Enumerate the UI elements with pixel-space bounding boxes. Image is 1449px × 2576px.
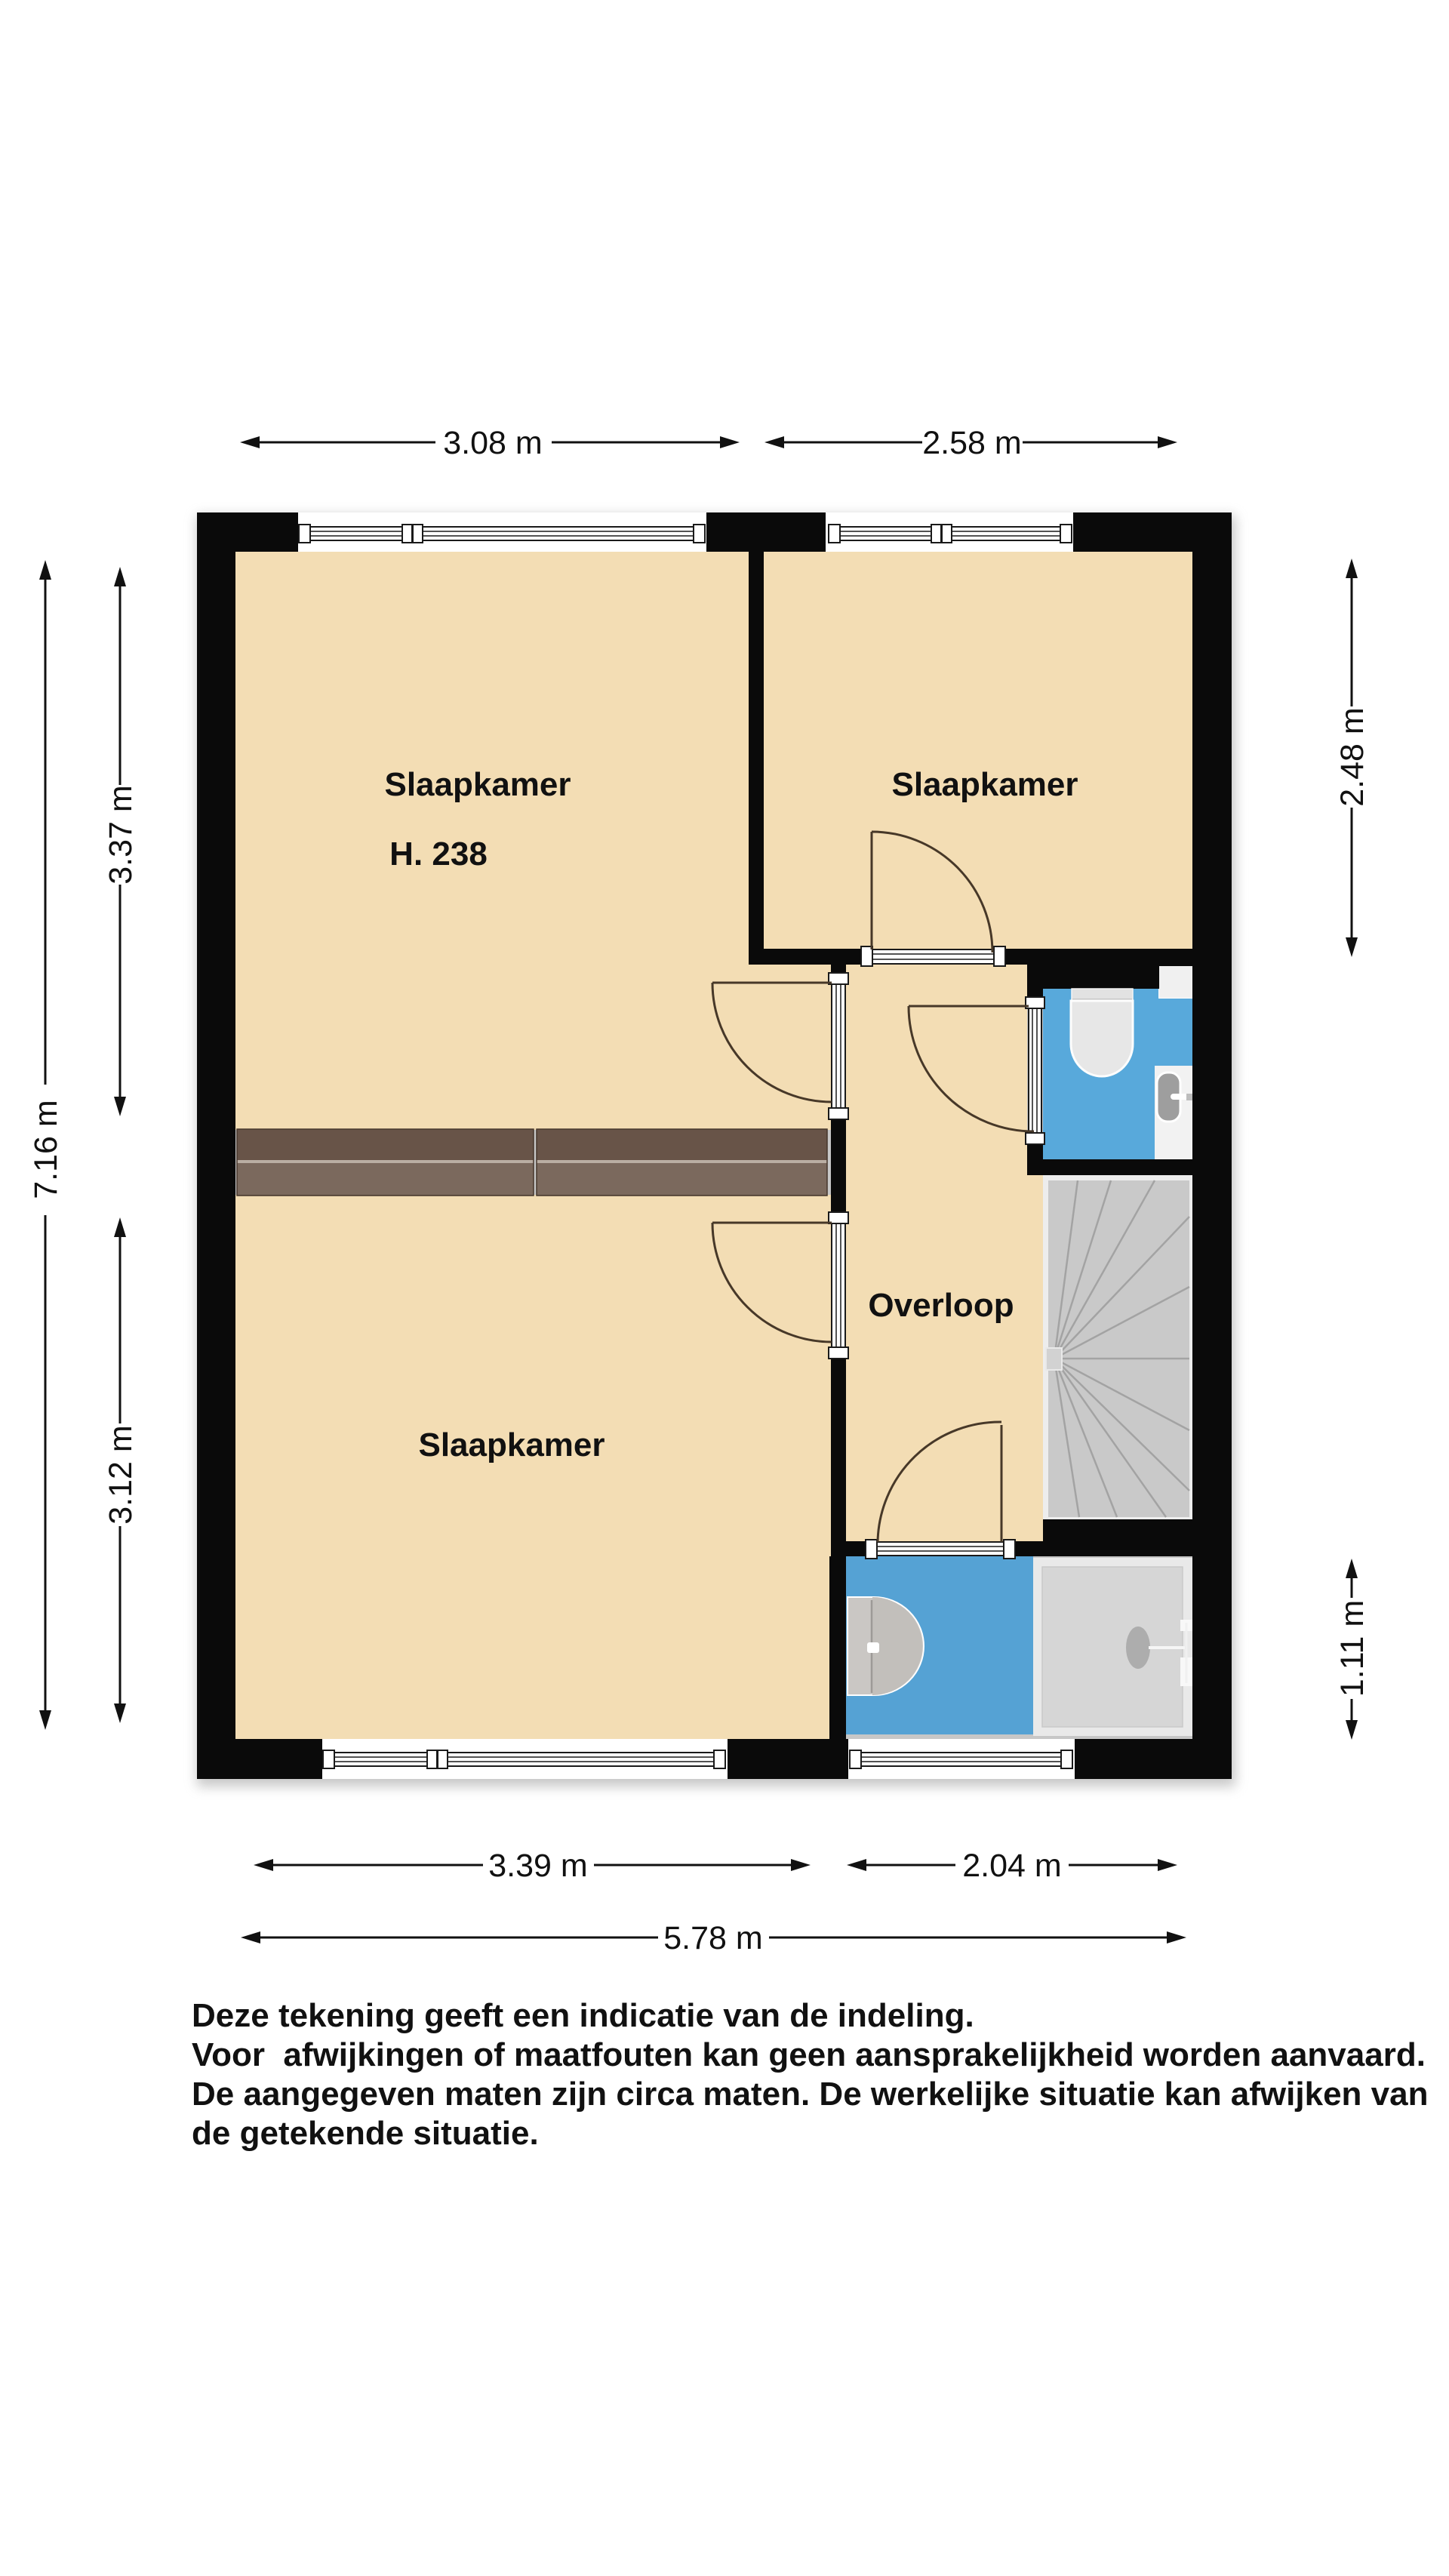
svg-text:2.58 m: 2.58 m	[922, 425, 1021, 461]
svg-text:3.12 m: 3.12 m	[103, 1425, 139, 1524]
svg-text:de getekende situatie.: de getekende situatie.	[192, 2115, 539, 2152]
svg-text:3.08 m: 3.08 m	[443, 425, 542, 461]
svg-text:Voor afwijkingen of maatfoute: Voor afwijkingen of maatfouten kan geen …	[192, 2036, 1426, 2073]
svg-text:3.39 m: 3.39 m	[488, 1848, 587, 1884]
svg-text:Slaapkamer: Slaapkamer	[418, 1426, 605, 1463]
svg-text:Slaapkamer: Slaapkamer	[891, 766, 1078, 803]
svg-text:5.78 m: 5.78 m	[663, 1920, 762, 1956]
svg-text:7.16 m: 7.16 m	[28, 1100, 64, 1199]
svg-text:Overloop: Overloop	[868, 1287, 1014, 1324]
svg-text:H. 238: H. 238	[389, 836, 488, 873]
svg-text:1.11 m: 1.11 m	[1334, 1600, 1371, 1697]
svg-text:2.04 m: 2.04 m	[962, 1848, 1061, 1884]
svg-text:3.37 m: 3.37 m	[103, 785, 139, 884]
svg-text:Deze tekening geeft een indica: Deze tekening geeft een indicatie van de…	[192, 1997, 974, 2034]
svg-text:Slaapkamer: Slaapkamer	[384, 766, 571, 803]
svg-text:De aangegeven maten zijn circa: De aangegeven maten zijn circa maten. De…	[192, 2076, 1428, 2113]
svg-text:2.48 m: 2.48 m	[1334, 707, 1371, 806]
